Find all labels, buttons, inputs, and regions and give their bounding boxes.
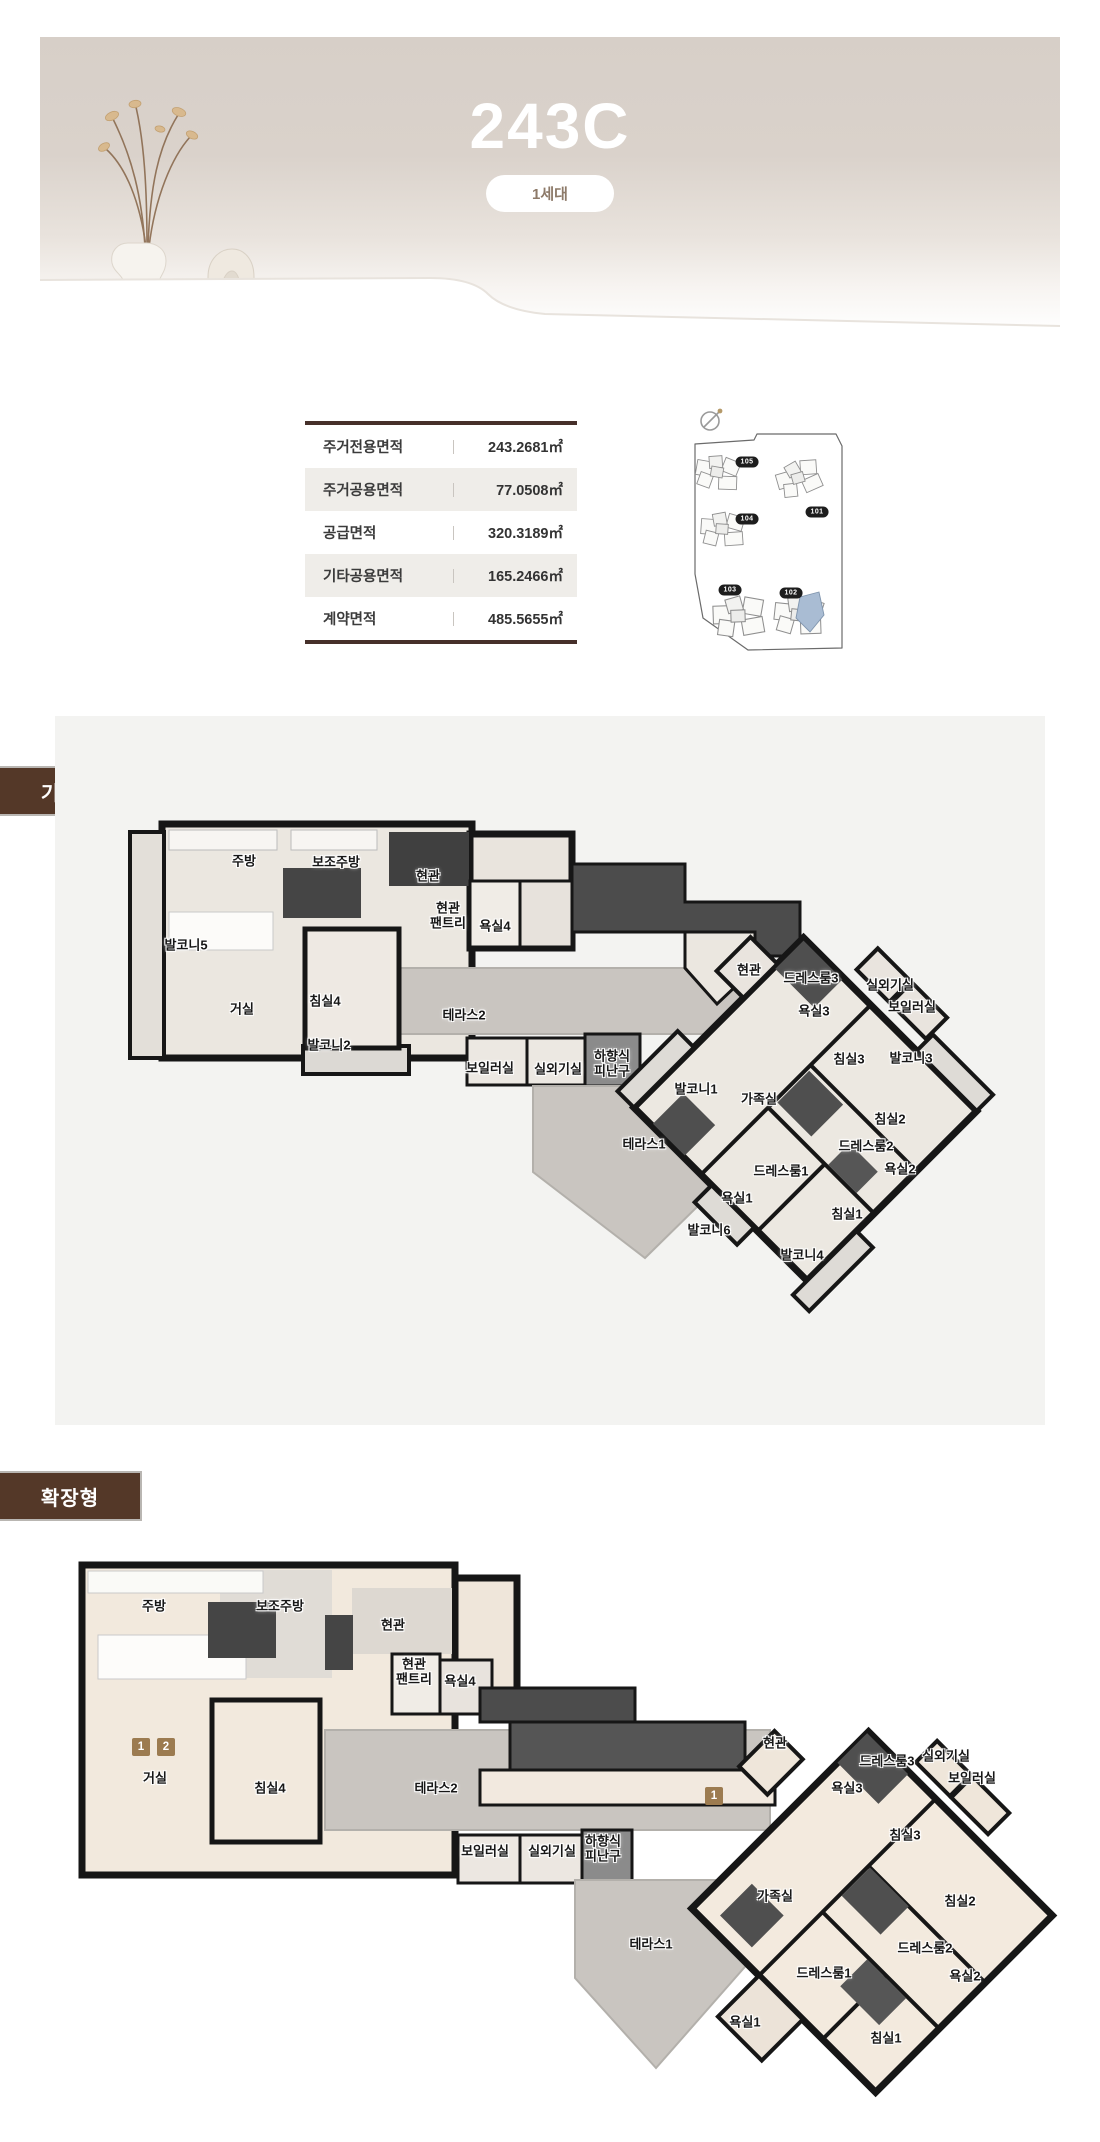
site-minimap: 105101104103102 [686, 403, 896, 655]
divider [453, 483, 454, 497]
site-map-drawing [686, 403, 896, 655]
building-badge: 104 [736, 514, 759, 525]
building-badge: 105 [736, 457, 759, 468]
basic-plan-panel [55, 716, 1045, 1425]
area-label: 계약면적 [323, 608, 441, 629]
page: 243C 1세대 주거전용면적 243.2681㎡ 주거공용면적 77.0508… [0, 0, 1100, 2142]
area-value: 485.5655㎡ [466, 608, 563, 629]
area-label: 주거공용면적 [323, 479, 441, 500]
area-label: 기타공용면적 [323, 565, 441, 586]
compass-icon [701, 409, 722, 430]
area-value: 165.2466㎡ [466, 565, 563, 586]
building-badge: 102 [780, 588, 803, 599]
area-label: 공급면적 [323, 522, 441, 543]
basic-floorplan-drawing [55, 716, 1045, 1425]
divider [453, 569, 454, 583]
area-table: 주거전용면적 243.2681㎡ 주거공용면적 77.0508㎡ 공급면적 32… [305, 421, 577, 644]
area-value: 77.0508㎡ [466, 479, 563, 500]
household-badge: 1세대 [486, 175, 614, 212]
area-table-row: 공급면적 320.3189㎡ [305, 511, 577, 554]
area-value: 243.2681㎡ [466, 436, 563, 457]
building-badge: 103 [719, 585, 742, 596]
area-table-row: 주거공용면적 77.0508㎡ [305, 468, 577, 511]
area-table-row: 주거전용면적 243.2681㎡ [305, 425, 577, 468]
section-title-extended: 확장형 [0, 1471, 142, 1521]
banner: 243C 1세대 [40, 37, 1060, 332]
shelf-curve [40, 252, 1060, 332]
divider [453, 612, 454, 626]
extended-plan-area [40, 1540, 1060, 2142]
building-badge: 101 [806, 507, 829, 518]
unit-title: 243C [40, 89, 1060, 163]
divider [453, 526, 454, 540]
section-title-text: 확장형 [41, 1482, 99, 1511]
area-label: 주거전용면적 [323, 436, 441, 457]
divider [453, 440, 454, 454]
area-table-row: 기타공용면적 165.2466㎡ [305, 554, 577, 597]
extended-floorplan-drawing [40, 1540, 1060, 2142]
area-value: 320.3189㎡ [466, 522, 563, 543]
area-table-row: 계약면적 485.5655㎡ [305, 597, 577, 640]
